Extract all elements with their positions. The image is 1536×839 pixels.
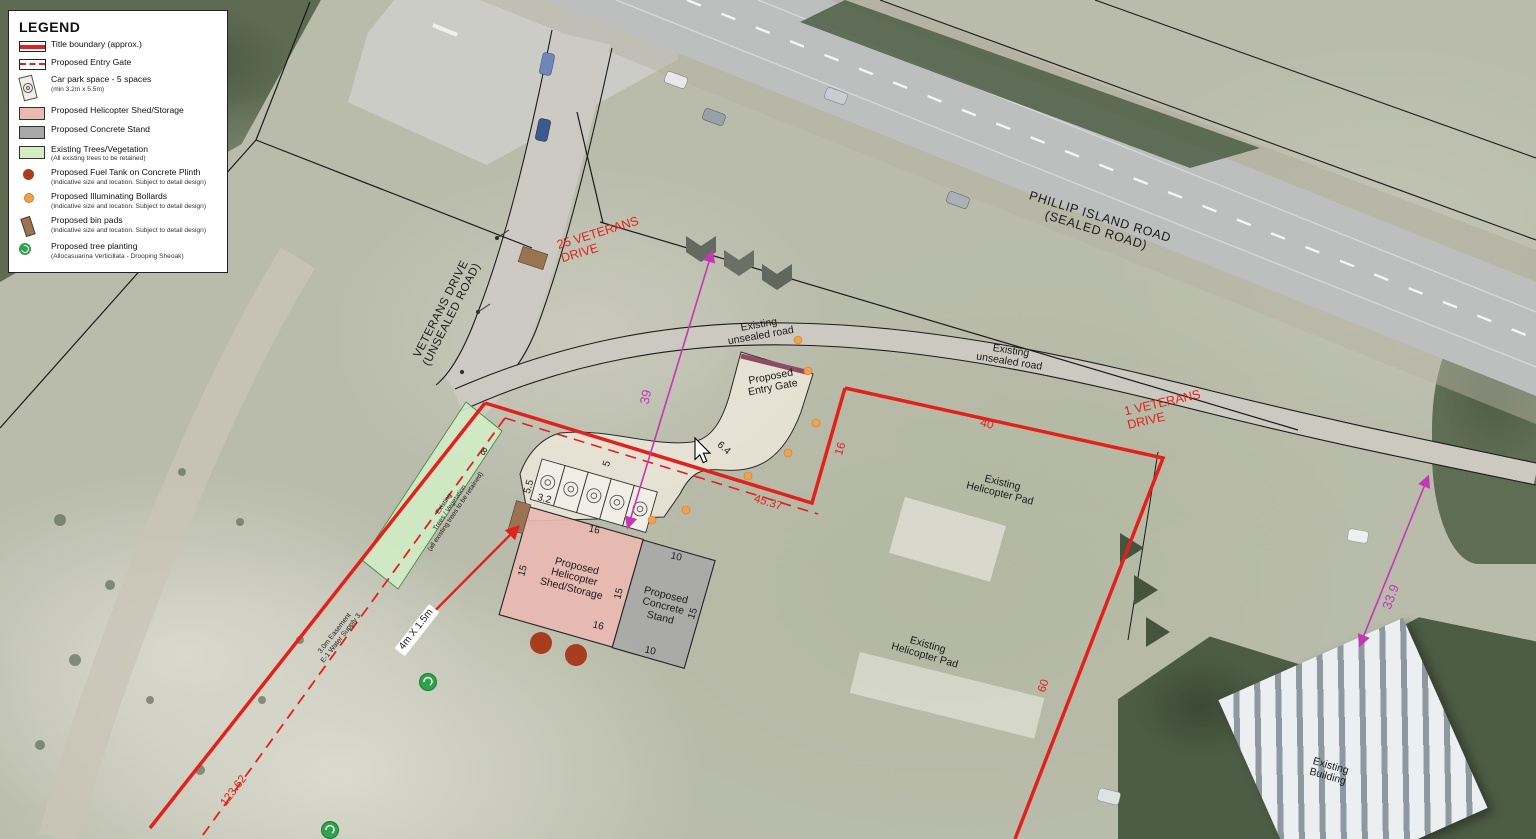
legend-sublabel: (Indicative size and location. Subject t… [51, 227, 206, 235]
helipad-north [889, 497, 1006, 582]
legend-item-trees-vegetation: Existing Trees/Vegetation (All existing … [19, 145, 219, 163]
title-boundary-swatch-icon [19, 41, 46, 52]
entry-gate-swatch-icon [19, 59, 46, 70]
legend-item-bollards: Proposed Illuminating Bollards (Indicati… [19, 192, 219, 210]
legend-sublabel: (Indicative size and location. Subject t… [51, 179, 206, 187]
legend-label: Proposed tree planting [51, 241, 137, 251]
legend-panel: LEGEND Title boundary (approx.) Proposed… [8, 10, 228, 273]
car-park-space-icon [18, 75, 37, 102]
legend-sublabel: (All existing trees to be retained) [51, 155, 148, 163]
legend-label: Title boundary (approx.) [51, 39, 142, 49]
legend-item-bin-pads: Proposed bin pads (Indicative size and l… [19, 216, 219, 236]
legend-item-concrete-stand: Proposed Concrete Stand [19, 125, 219, 139]
legend-label: Proposed bin pads [51, 215, 123, 225]
dimension-line-east [1360, 477, 1428, 645]
tree-planting-swatch-icon [19, 243, 31, 255]
trees-vegetation-swatch-icon [19, 146, 45, 159]
legend-title: LEGEND [19, 19, 219, 35]
legend-label: Car park space - 5 spaces [51, 74, 151, 84]
legend-sublabel: (Allocasuarina Verticillata - Drooping S… [51, 253, 184, 261]
fuel-tank-dot [530, 632, 552, 654]
dim-stand-width-south: 10 [643, 646, 656, 659]
legend-item-entry-gate: Proposed Entry Gate [19, 58, 219, 70]
legend-label: Existing Trees/Vegetation [51, 144, 148, 154]
legend-sublabel: (min 3.2m x 5.5m) [51, 86, 151, 94]
vegetation-strip [362, 402, 502, 589]
concrete-stand-swatch-icon [19, 126, 45, 139]
plan-overlay [0, 0, 1536, 839]
fuel-tank-swatch-icon [23, 169, 34, 180]
legend-item-fuel-tank: Proposed Fuel Tank on Concrete Plinth (I… [19, 168, 219, 186]
legend-item-car-park: Car park space - 5 spaces (min 3.2m x 5.… [19, 75, 219, 100]
track-southwest [58, 258, 298, 839]
fuel-tank-dot [565, 644, 587, 666]
legend-sublabel: (Indicative size and location. Subject t… [51, 203, 206, 211]
legend-item-tree-planting: Proposed tree planting (Allocasuarina Ve… [19, 242, 219, 260]
bin-pad-swatch-icon [20, 216, 35, 237]
site-plan-canvas[interactable]: PHILLIP ISLAND ROAD (SEALED ROAD) VETERA… [0, 0, 1536, 839]
dim-carpark-length: 16 [587, 525, 600, 538]
veterans-drive-road [460, 38, 582, 398]
dim-shed-width: 16 [591, 621, 604, 634]
legend-label: Proposed Helicopter Shed/Storage [51, 105, 184, 115]
legend-label: Proposed Fuel Tank on Concrete Plinth [51, 167, 200, 177]
bollard-swatch-icon [24, 193, 34, 203]
legend-label: Proposed Entry Gate [51, 57, 131, 67]
dim-39: 39 [638, 388, 655, 405]
dim-stand-width-north: 10 [669, 552, 682, 565]
legend-label: Proposed Illuminating Bollards [51, 191, 167, 201]
legend-item-helicopter-shed: Proposed Helicopter Shed/Storage [19, 106, 219, 120]
helicopter-shed-swatch-icon [19, 107, 45, 120]
legend-item-title-boundary: Title boundary (approx.) [19, 40, 219, 52]
tree-planting-symbols [322, 674, 437, 839]
legend-label: Proposed Concrete Stand [51, 124, 150, 134]
